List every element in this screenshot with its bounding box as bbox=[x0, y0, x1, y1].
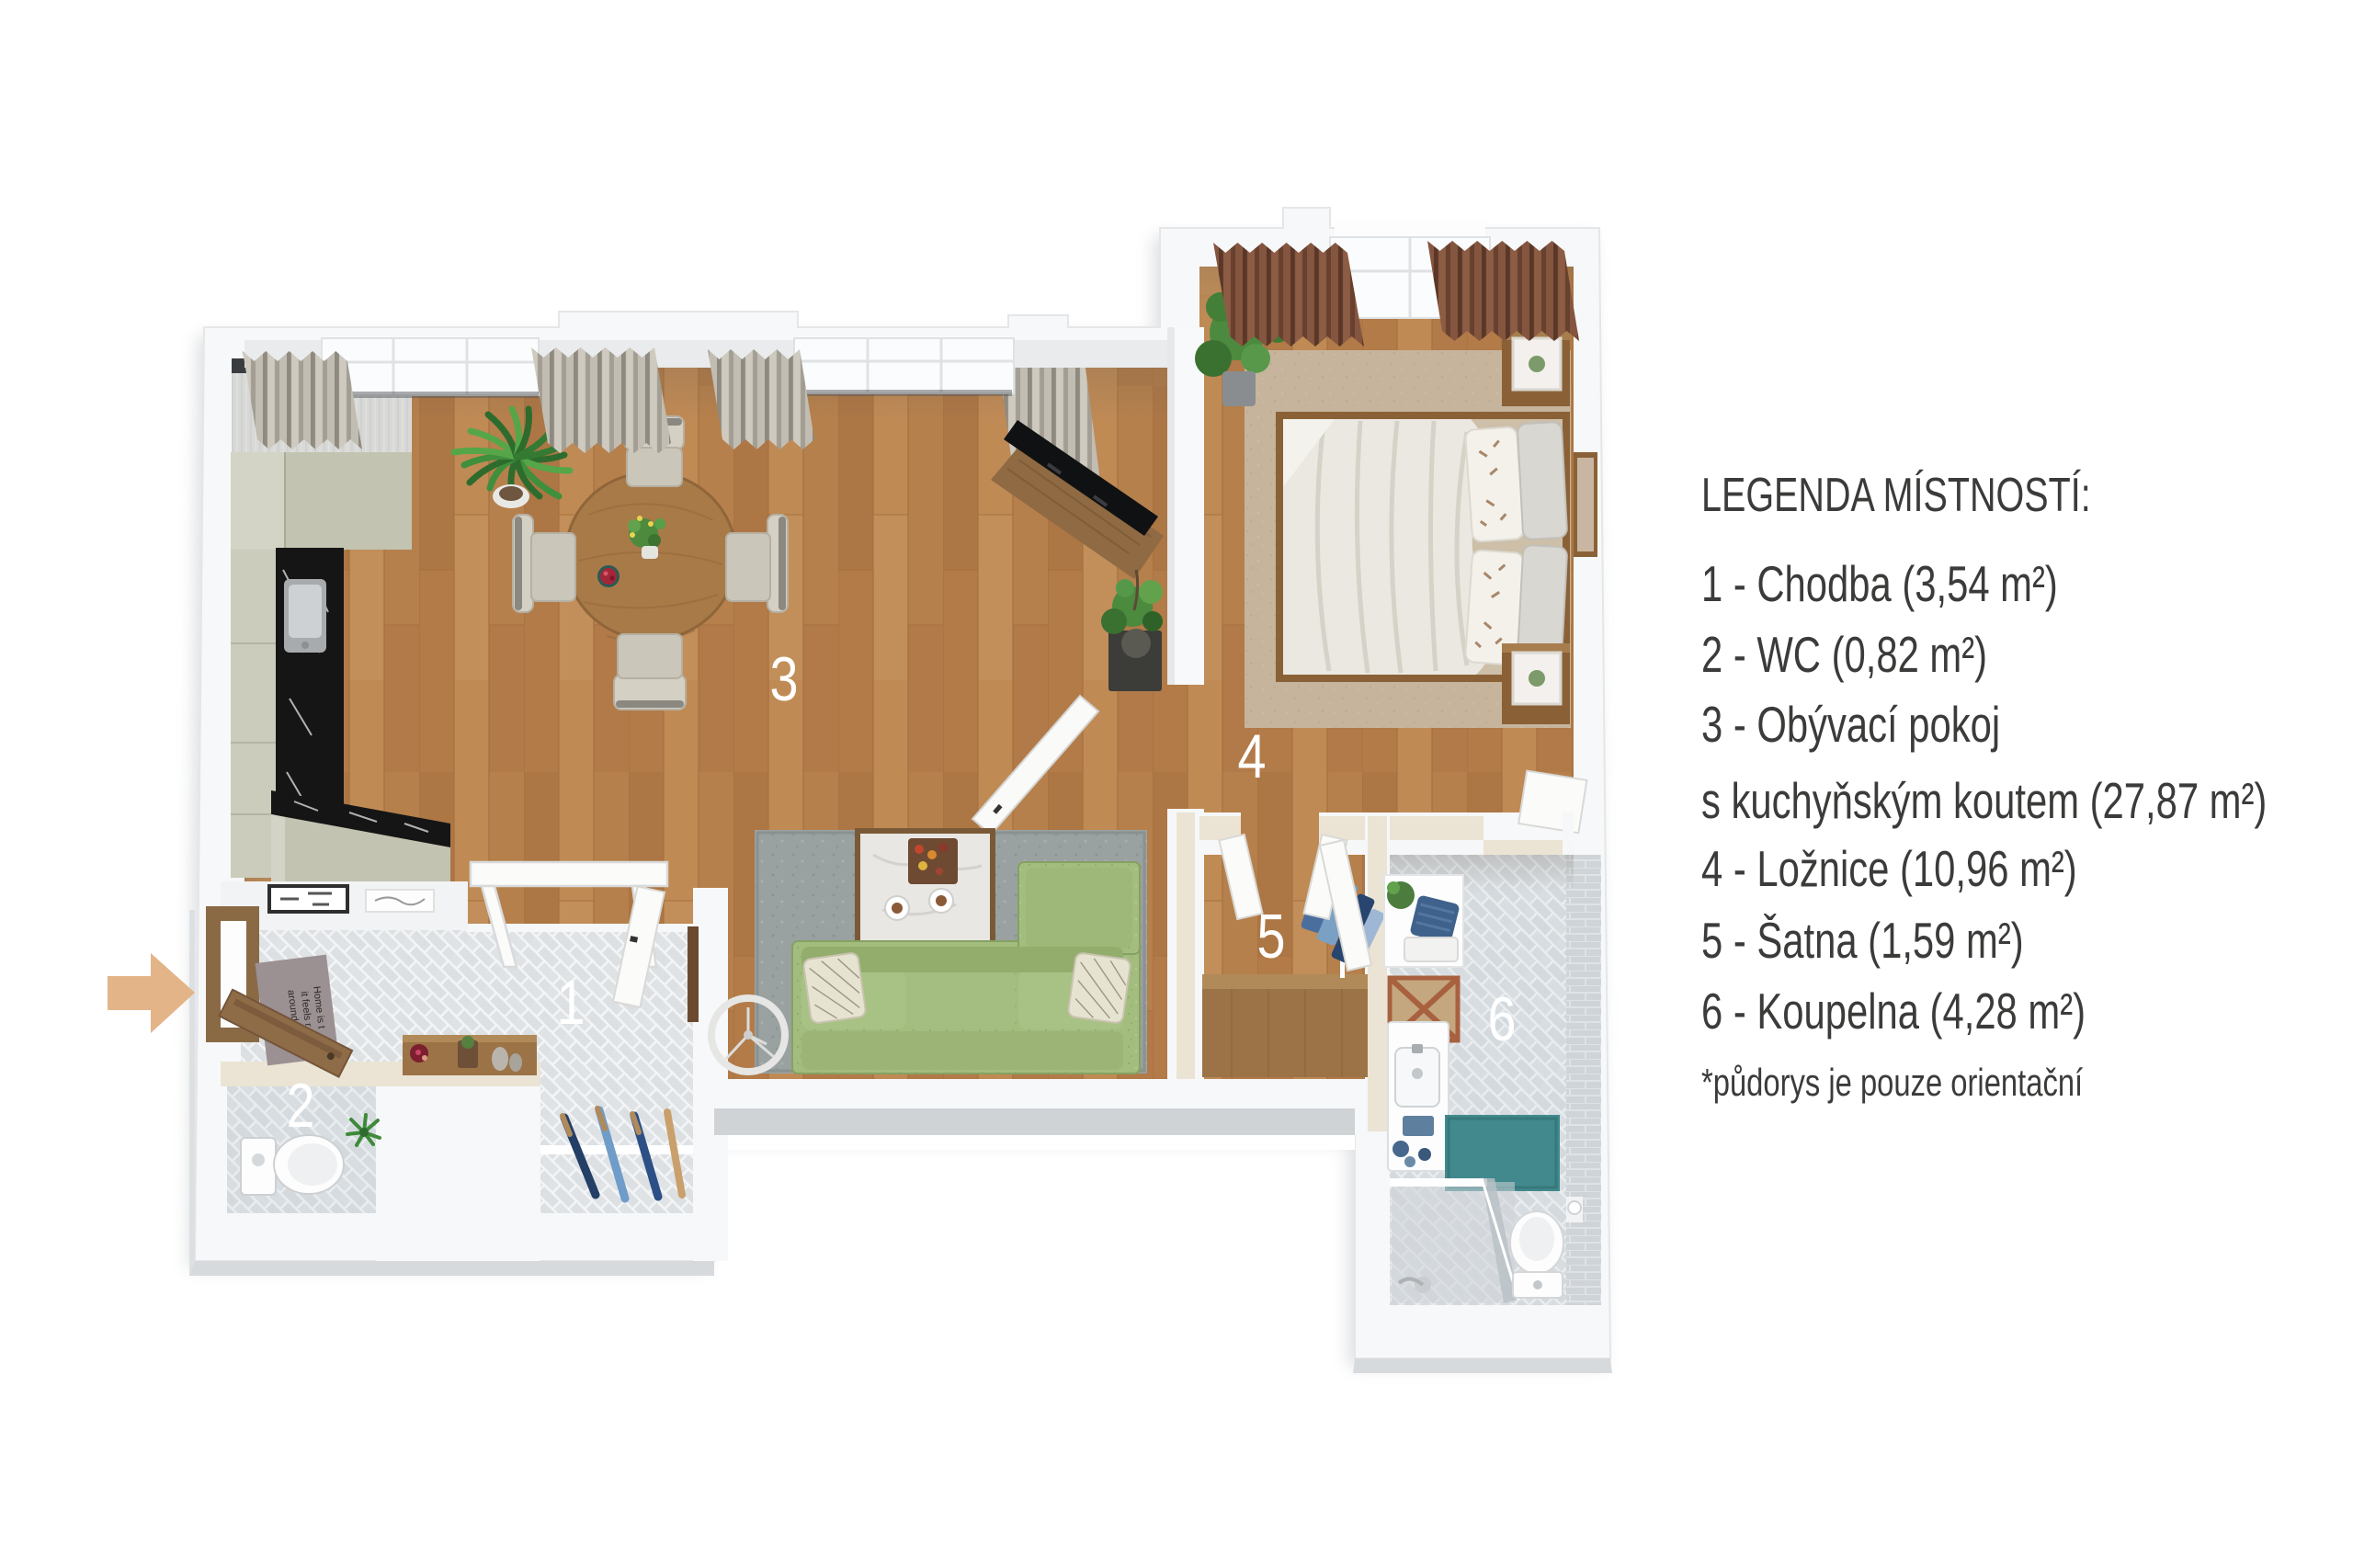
svg-text:4 - Ložnice (10,96 m²): 4 - Ložnice (10,96 m²) bbox=[1701, 842, 2077, 898]
svg-text:3: 3 bbox=[769, 645, 798, 714]
svg-text:LEGENDA MÍSTNOSTÍ:: LEGENDA MÍSTNOSTÍ: bbox=[1701, 468, 2091, 522]
svg-text:5: 5 bbox=[1256, 903, 1285, 971]
svg-text:2: 2 bbox=[286, 1072, 314, 1141]
svg-text:6 - Koupelna (4,28 m²): 6 - Koupelna (4,28 m²) bbox=[1701, 984, 2086, 1040]
svg-text:1: 1 bbox=[556, 969, 585, 1038]
svg-text:s kuchyňským koutem (27,87 m²): s kuchyňským koutem (27,87 m²) bbox=[1701, 774, 2267, 830]
svg-text:6: 6 bbox=[1487, 985, 1516, 1054]
svg-text:2 - WC (0,82 m²): 2 - WC (0,82 m²) bbox=[1701, 628, 1987, 684]
svg-text:4: 4 bbox=[1237, 722, 1266, 791]
svg-text:5 - Šatna (1,59 m²): 5 - Šatna (1,59 m²) bbox=[1701, 914, 2024, 970]
svg-text:3 - Obývací pokoj: 3 - Obývací pokoj bbox=[1701, 698, 2000, 754]
svg-text:1 - Chodba (3,54 m²): 1 - Chodba (3,54 m²) bbox=[1701, 557, 2058, 613]
svg-text:*půdorys je pouze orientační: *půdorys je pouze orientační bbox=[1701, 1061, 2084, 1104]
